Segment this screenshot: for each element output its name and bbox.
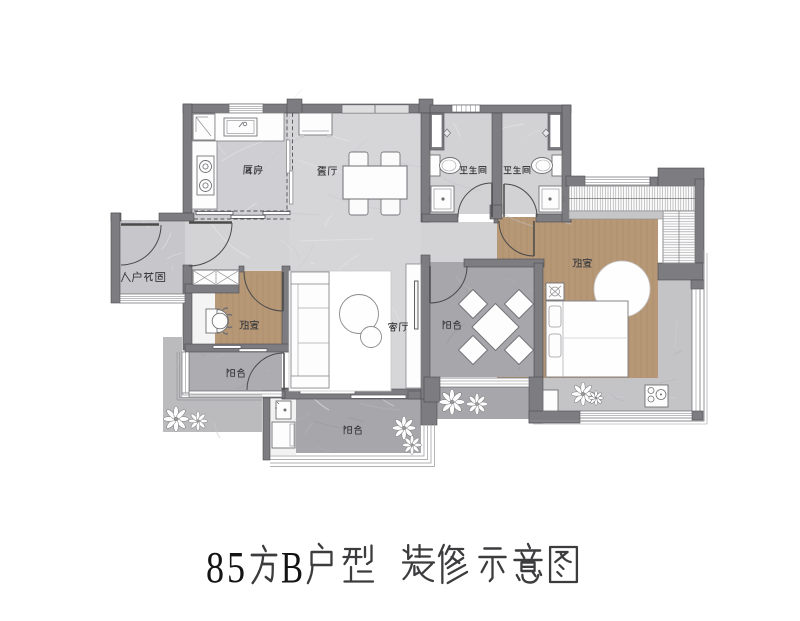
- svg-text:8: 8: [206, 543, 224, 592]
- svg-text:5: 5: [227, 543, 245, 592]
- svg-text:B: B: [281, 544, 303, 593]
